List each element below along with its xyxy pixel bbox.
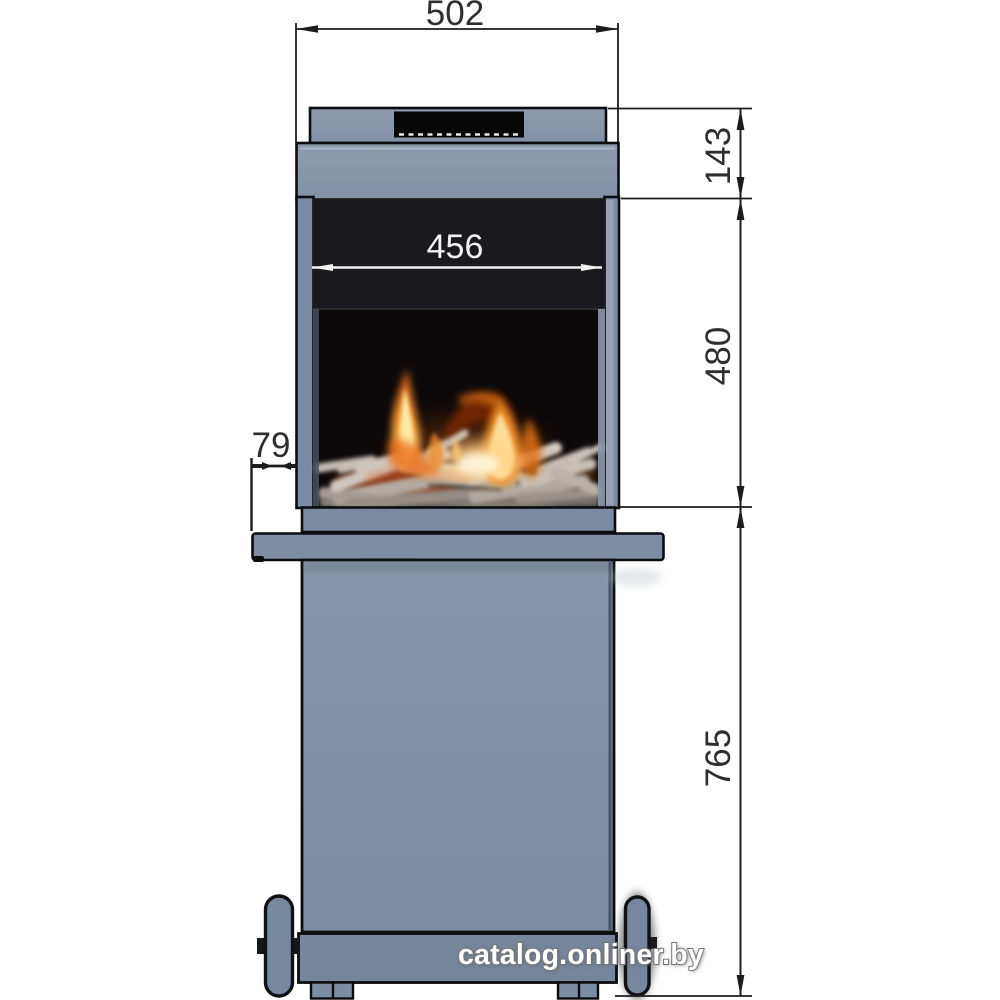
svg-text:catalog.onliner.by: catalog.onliner.by [458, 939, 704, 971]
svg-text:502: 502 [426, 0, 484, 33]
svg-text:79: 79 [252, 426, 291, 465]
svg-text:456: 456 [427, 228, 484, 266]
svg-text:480: 480 [699, 327, 738, 385]
svg-text:143: 143 [699, 127, 738, 185]
svg-text:765: 765 [699, 729, 738, 787]
